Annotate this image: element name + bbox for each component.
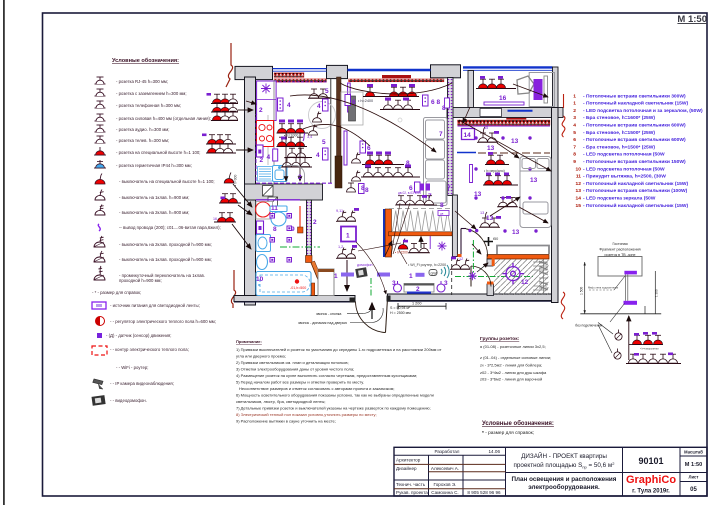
svg-text:13: 13 [486,215,494,222]
svg-text:8: 8 [365,187,369,194]
svg-text:16: 16 [499,95,507,102]
svg-text:14: 14 [576,196,582,202]
svg-text:- LED подсветка потолочная (: - LED подсветка потолочная (50W [583,152,665,158]
svg-text:1 300: 1 300 [655,289,659,297]
svg-text:Разработал: Разработал [434,449,459,454]
svg-text:zб - 3*2,5м2 - линия для бойле: zб - 3*2,5м2 - линия для бойлера; [480,363,542,368]
svg-text:8: 8 [273,226,277,233]
svg-text:16: 16 [213,217,217,221]
svg-text:- LED подсветка зеркала (50W: - LED подсветка зеркала (50W [583,196,656,202]
svg-text:Архитектор: Архитектор [396,458,421,463]
svg-text:- Потолочные встраив светильн: - Потолочные встраив светильники 150W) [583,159,686,165]
svg-text:15: 15 [576,203,582,209]
svg-text:- * - размер для справок;: - * - размер для справок; [92,290,141,295]
svg-text:- - регулятор электрического т: - - регулятор электрического теплого пол… [110,319,216,324]
svg-text:3: 3 [573,115,576,121]
svg-text:1: 1 [409,273,413,280]
svg-text:- Потолочный накладной светил: - Потолочный накладной светильник (15W) [583,202,689,209]
svg-text:4: 4 [573,123,576,129]
svg-text:1 500: 1 500 [580,287,584,295]
svg-text:светильников, люстр, бра, свет: светильников, люстр, бра, светодиодной л… [236,399,326,404]
svg-text:• h=зерк(ало): • h=зерк(ало) [484,169,505,173]
svg-text:- Потолочный накладной светил: - Потолочный накладной светильник (15W) [583,100,689,107]
svg-text:13: 13 [487,145,495,152]
svg-text:Горохов Э.: Горохов Э. [434,482,457,487]
svg-text:H = 2500 мм: H = 2500 мм [390,311,411,315]
svg-text:1,2: 1,2 [338,245,343,249]
svg-text:2: 2 [573,108,576,114]
svg-text:7) Детальные привязки розеток: 7) Детальные привязки розеток и выключат… [236,406,431,411]
svg-text:GraphiCo: GraphiCo [626,474,676,486]
svg-text:- Бра стеновое, h=1500* (25W): - Бра стеновое, h=1500* (25W) [583,130,655,136]
svg-text:1: 1 [334,273,338,280]
svg-text:- Бра стеновое, h=1600* (25W): - Бра стеновое, h=1600* (25W) [583,115,655,121]
svg-text:6: 6 [431,99,435,106]
svg-text:6: 6 [573,137,576,143]
svg-text:Несоответствие размеров и отме: Несоответствие размеров и отметок соглас… [239,386,395,391]
svg-text:ДИЗАЙН - ПРОЕКТ квартиры: ДИЗАЙН - ПРОЕКТ квартиры [521,451,607,460]
svg-text:1 200: 1 200 [412,302,422,306]
svg-text:- LED подсветка потолочная (: - LED подсветка потолочная (50W [583,166,665,172]
svg-text:проходной h=900 мм;: проходной h=900 мм; [119,278,162,283]
svg-text:z03 - 3*6м2 - линия для варочн: z03 - 3*6м2 - линия для варочной [480,377,542,382]
svg-text:05: 05 [690,487,697,493]
svg-text:90101: 90101 [638,456,663,466]
svg-text:- LED подсветка потолочная и: - LED подсветка потолочная и за зеркалом… [583,108,703,114]
svg-text:- - видеодомофон.: - - видеодомофон. [110,398,147,403]
svg-text:5: 5 [573,130,576,136]
svg-text:3,4: 3,4 [307,135,312,139]
svg-text:- Потолочные встраив светильн: - Потолочные встраив светильники 600W) [583,137,686,143]
svg-text:8: 8 [440,202,444,209]
svg-text:Лист: Лист [689,475,699,480]
svg-text:13: 13 [530,177,538,184]
svg-text:5: 5 [325,88,329,95]
svg-text:Примечание:: Примечание: [236,339,262,344]
svg-text:М 1:50: М 1:50 [677,14,707,25]
svg-text:- выключатель на 2клав. h=900: - выключатель на 2клав. h=900 мм; [119,210,189,215]
svg-text:-01,h=500: -01,h=500 [290,286,306,290]
svg-text:- розетка аудио. h=300 мм;: - розетка аудио. h=300 мм; [116,127,169,132]
svg-text:-- вывод провода (200); с01...: -- вывод провода (200); с01....06-витая … [119,225,221,230]
svg-text:1: 1 [573,101,576,107]
svg-text:Самохина С.: Самохина С. [431,490,458,495]
svg-text:9) Расположение вытяжки в саун: 9) Расположение вытяжки в сауне уточнить… [236,419,336,424]
svg-text:5: 5 [322,139,326,146]
svg-text:8 905 528 96 96: 8 905 528 96 96 [467,490,501,495]
svg-text:t50: t50 [493,237,498,241]
svg-text:8: 8 [361,185,365,192]
svg-text:Алексевич А.: Алексевич А. [431,466,459,471]
svg-text:9: 9 [573,159,576,165]
svg-text:- выключатель на специальной в: - выключатель на специальной высоте h=1 … [119,179,215,184]
svg-text:- выключатель на 1клав. прохо: - выключатель на 1клав. проходной h=900 … [119,257,212,262]
svg-text:М 1:50: М 1:50 [685,462,702,468]
svg-text:дв.02, в.03 в.04: дв.02, в.03 в.04 [398,191,421,195]
svg-text:- - WiFi - роутер;: - - WiFi - роутер; [116,365,148,370]
svg-text:1: 1 [573,93,576,99]
svg-text:Мвф стена подрозетники: Мвф стена подрозетники [588,286,619,290]
svg-text:13: 13 [474,191,482,198]
svg-text:Рукав. проекта: Рукав. проекта [396,490,428,495]
svg-text:8: 8 [437,99,441,106]
svg-text:Фрагмент расположения: Фрагмент расположения [599,248,640,252]
svg-text:15: 15 [484,126,488,130]
svg-text:- Потолочные встраив светильн: - Потолочные встраив светильники 300W) [583,93,686,99]
svg-text:- выключатель на 2клав. прохо: - выключатель на 2клав. проходной h=900 … [119,242,212,247]
svg-text:звонок - динамик над дверью: звонок - динамик над дверью [298,321,347,325]
svg-text:1) Привязки выключателей и роз: 1) Привязки выключателей и розеток по ум… [236,347,442,352]
svg-text:4: 4 [316,152,320,159]
svg-text:z (01..04) - отдельные силовые: z (01..04) - отдельные силовые линии; [480,355,551,360]
svg-text:- источник питания для светоди: - источник питания для светодиодной лент… [110,303,200,308]
svg-text:7: 7 [573,144,576,150]
svg-text:- Потолочный накладной светил: - Потолочный накладной светильник (15W) [583,180,689,187]
svg-text:- розетка силовая h=400 мм (от: - розетка силовая h=400 мм (отдельная ли… [116,116,211,121]
svg-text:2: 2 [259,107,263,114]
svg-text:домофон: домофон [357,263,373,267]
svg-text:2) Привязки светильников см. п: 2) Привязки светильников см. план и дета… [236,360,349,365]
svg-text:GW: GW [431,271,438,275]
svg-text:- розетка герметичная IP44 h=3: - розетка герметичная IP44 h=300 мм; [116,163,192,168]
svg-text:14.06: 14.06 [489,449,501,454]
svg-text:• h=900: • h=900 [234,175,238,186]
svg-text:- розетка телефонная h=300 мм;: - розетка телефонная h=300 мм; [116,103,181,108]
svg-text:электрооборудования.: электрооборудования. [528,483,600,491]
svg-text:- - контур электрического тепл: - - контур электрического теплого пола; [110,347,189,352]
svg-text:2: 2 [298,174,302,181]
svg-text:9: 9 [291,226,295,233]
svg-text:9,11: 9,11 [336,209,343,213]
svg-text:Условные обозначения:: Условные обозначения: [482,420,554,427]
svg-text:10: 10 [576,166,582,172]
svg-text:Группы розеток:: Группы розеток: [480,336,520,342]
svg-text:4: 4 [267,154,271,161]
svg-text:- Потолочные встраив светильн: - Потолочные встраив светильники 600W) [583,123,686,129]
svg-text:звонок - кнопка: звонок - кнопка [316,312,341,316]
svg-text:Масштаб: Масштаб [684,450,703,455]
svg-text:13: 13 [576,188,582,194]
svg-text:- выключатель на 1клав. h=900: - выключатель на 1клав. h=900 мм; [119,195,189,200]
svg-text:угла или дверного проема;: угла или дверного проема; [236,354,286,359]
svg-text:Технич. часть: Технич. часть [396,482,426,487]
svg-text:4) Размещение розеток на кухне: 4) Размещение розеток на кухне выполнить… [236,373,417,378]
svg-text:13: 13 [480,211,484,215]
svg-text:3: 3 [392,280,396,287]
svg-text:14: 14 [464,132,472,139]
svg-text:z02 - 3*4м2 - линия для душ шк: z02 - 3*4м2 - линия для душ шкафа [480,370,547,375]
svg-text:2: 2 [313,219,317,226]
svg-text:4: 4 [317,103,321,110]
svg-text:11: 11 [576,174,581,180]
svg-text:5) Перед началом работ все раз: 5) Перед началом работ все размеры и отм… [236,380,364,385]
svg-text:6) Мощность осветительного обо: 6) Мощность осветительного оборудования … [236,393,434,398]
svg-text:10: 10 [256,276,264,283]
svg-text:1: 1 [346,233,350,240]
svg-text:6: 6 [367,145,371,152]
svg-text:я (01-08) - розеточные линии 3: я (01-08) - розеточные линии 3х2,5; [480,344,546,349]
svg-text:3) Отметки электрооборудовани: 3) Отметки электрооборудования даны от у… [236,367,354,372]
svg-text:дв: дв [440,212,444,216]
svg-text:- розетка на специальной высот: - розетка на специальной высоте h=1 100; [116,150,200,155]
svg-text:3: 3 [444,280,448,287]
svg-text:Дизайнер: Дизайнер [396,465,417,471]
svg-text:- розетка с заземлением h=300: - розетка с заземлением h=300 мм; [116,91,187,96]
svg-text:• h=газорозетки: • h=газорозетки [640,347,659,351]
svg-text:- Принудит вытяжка, h=2500, (: - Принудит вытяжка, h=2500, (30W [583,174,666,180]
svg-text:12: 12 [576,181,582,187]
svg-text:- розетка телев. h=300 мм;: - розетка телев. h=300 мм; [116,138,169,143]
svg-text:12: 12 [521,279,529,286]
svg-text:7: 7 [439,131,443,138]
svg-text:13: 13 [511,138,519,145]
svg-text:Гостиная: Гостиная [612,242,627,246]
svg-text:4: 4 [287,102,291,109]
svg-text:12: 12 [459,257,463,261]
svg-text:11: 11 [271,205,278,212]
svg-text:• WI_Fi роутер, h=2200: • WI_Fi роутер, h=2200 [408,263,446,267]
svg-text:проектной площадью Sпр = 50,6: проектной площадью Sпр = 50,6 м2 [514,461,616,470]
svg-text:- (Д) - датчик (сенсор) движен: - (Д) - датчик (сенсор) движения; [106,333,171,338]
svg-text:13: 13 [512,229,520,236]
svg-text:8: 8 [573,152,576,158]
svg-text:• h=2400: • h=2400 [358,99,373,103]
svg-text:- Потолочные встраив светильн: - Потолочные встраив светильники (100W) [583,188,688,194]
svg-text:2: 2 [260,157,264,164]
svg-text:2: 2 [416,286,420,293]
svg-text:Условные обозначения:: Условные обозначения: [112,57,179,64]
svg-text:7: 7 [447,185,451,192]
svg-text:- Бра стеновое, h=1500* (25W): - Бра стеновое, h=1500* (25W) [583,144,655,150]
svg-text:- - IP камера видеонаблюдения;: - - IP камера видеонаблюдения; [110,381,174,386]
svg-text:- розетка RJ-45 h=300 мм;: - розетка RJ-45 h=300 мм; [116,79,168,84]
svg-text:План освещения и расположения: План освещения и расположения [512,476,617,483]
svg-text:8) Электрический теплый пол по: 8) Электрический теплый пол показан усло… [236,412,377,417]
svg-text:* - размер для справок;: * - размер для справок; [482,430,534,436]
svg-text:г. Тула 2019г.: г. Тула 2019г. [632,489,670,495]
